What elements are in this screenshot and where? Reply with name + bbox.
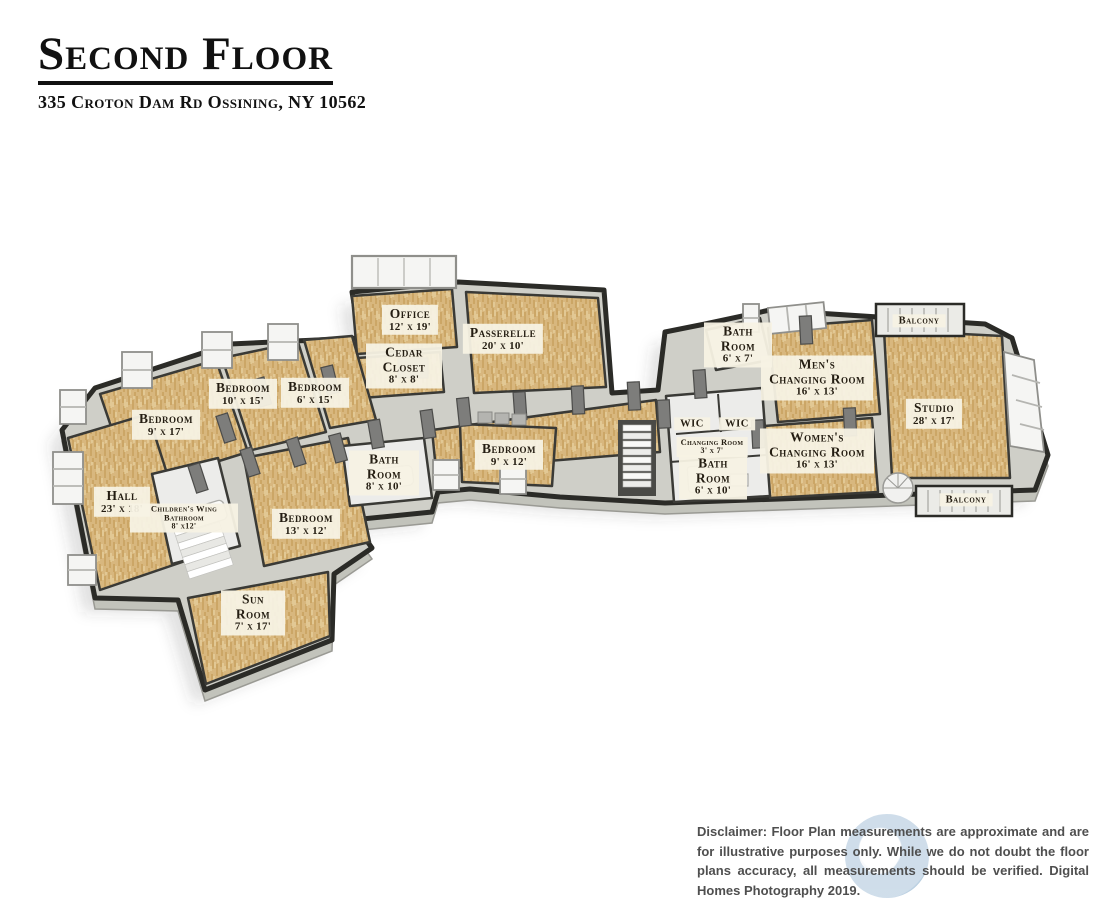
room-label-bedroom-10x15: Bedroom 10' x 15' xyxy=(209,379,277,409)
middle-staircase xyxy=(618,420,656,496)
room-label-office: Office 12' x 19' xyxy=(382,305,438,335)
room-label-cedar-closet: Cedar Closet 8' x 8' xyxy=(366,343,442,388)
disclaimer-text: Disclaimer: Floor Plan measurements are … xyxy=(697,822,1089,900)
room-label-balcony-top: Balcony xyxy=(893,314,946,327)
page-title: Second Floor xyxy=(38,30,333,85)
room-label-passerelle: Passerelle 20' x 10' xyxy=(463,324,543,354)
floor-plan-page: Second Floor 335 Croton Dam Rd Ossining,… xyxy=(0,0,1112,914)
room-label-bedroom-6x15: Bedroom 6' x 15' xyxy=(281,378,349,408)
room-label-wic-right: WIC xyxy=(719,417,755,430)
room-label-wic-left: WIC xyxy=(674,417,710,430)
spiral-staircase xyxy=(883,473,913,503)
page-address: 335 Croton Dam Rd Ossining, NY 10562 xyxy=(38,92,366,113)
room-label-womens-changing-room: Women's Changing Room 16' x 13' xyxy=(760,428,874,473)
title-block: Second Floor 335 Croton Dam Rd Ossining,… xyxy=(38,30,366,113)
room-label-bath-room-8x10: Bath Room 8' x 10' xyxy=(349,450,419,495)
room-label-studio: Studio 28' x 17' xyxy=(906,399,962,429)
room-label-bedroom-9x12: Bedroom 9' x 12' xyxy=(475,440,543,470)
room-label-bedroom-9x17: Bedroom 9' x 17' xyxy=(132,410,200,440)
floor-plan-rendering xyxy=(0,0,1112,914)
room-label-balcony-bottom: Balcony xyxy=(940,493,993,506)
room-label-bedroom-13x12: Bedroom 13' x 12' xyxy=(272,509,340,539)
room-label-bath-room-6x10: Bath Room 6' x 10' xyxy=(679,454,747,499)
room-label-sun-room: Sun Room 7' x 17' xyxy=(221,590,285,635)
room-label-childrens-wing-bathroom: Children's Wing Bathroom 8' x12' xyxy=(130,504,238,533)
disclaimer-block: Disclaimer: Floor Plan measurements are … xyxy=(697,822,1089,902)
room-label-mens-changing-room: Men's Changing Room 16' x 13' xyxy=(761,355,873,400)
